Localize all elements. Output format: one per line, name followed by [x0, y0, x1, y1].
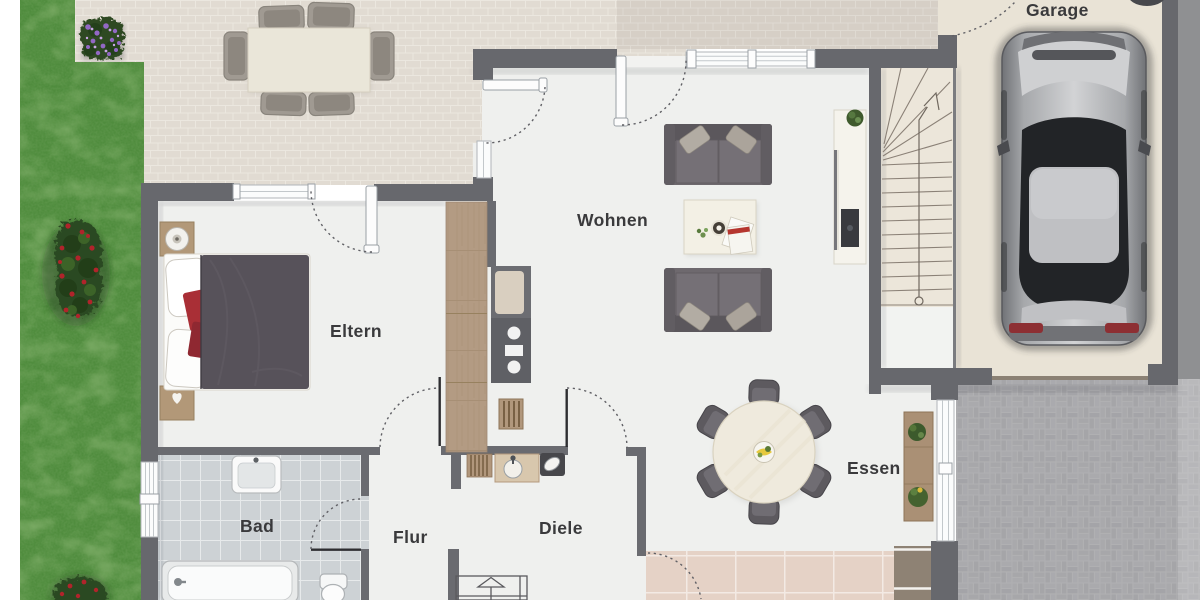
svg-text:Essen: Essen	[847, 458, 901, 478]
svg-text:Wohnen: Wohnen	[577, 210, 648, 230]
svg-text:Garage: Garage	[1026, 0, 1089, 20]
svg-text:Flur: Flur	[393, 527, 428, 547]
svg-text:Bad: Bad	[240, 516, 274, 536]
svg-text:Eltern: Eltern	[330, 321, 382, 341]
svg-text:Diele: Diele	[539, 518, 583, 538]
